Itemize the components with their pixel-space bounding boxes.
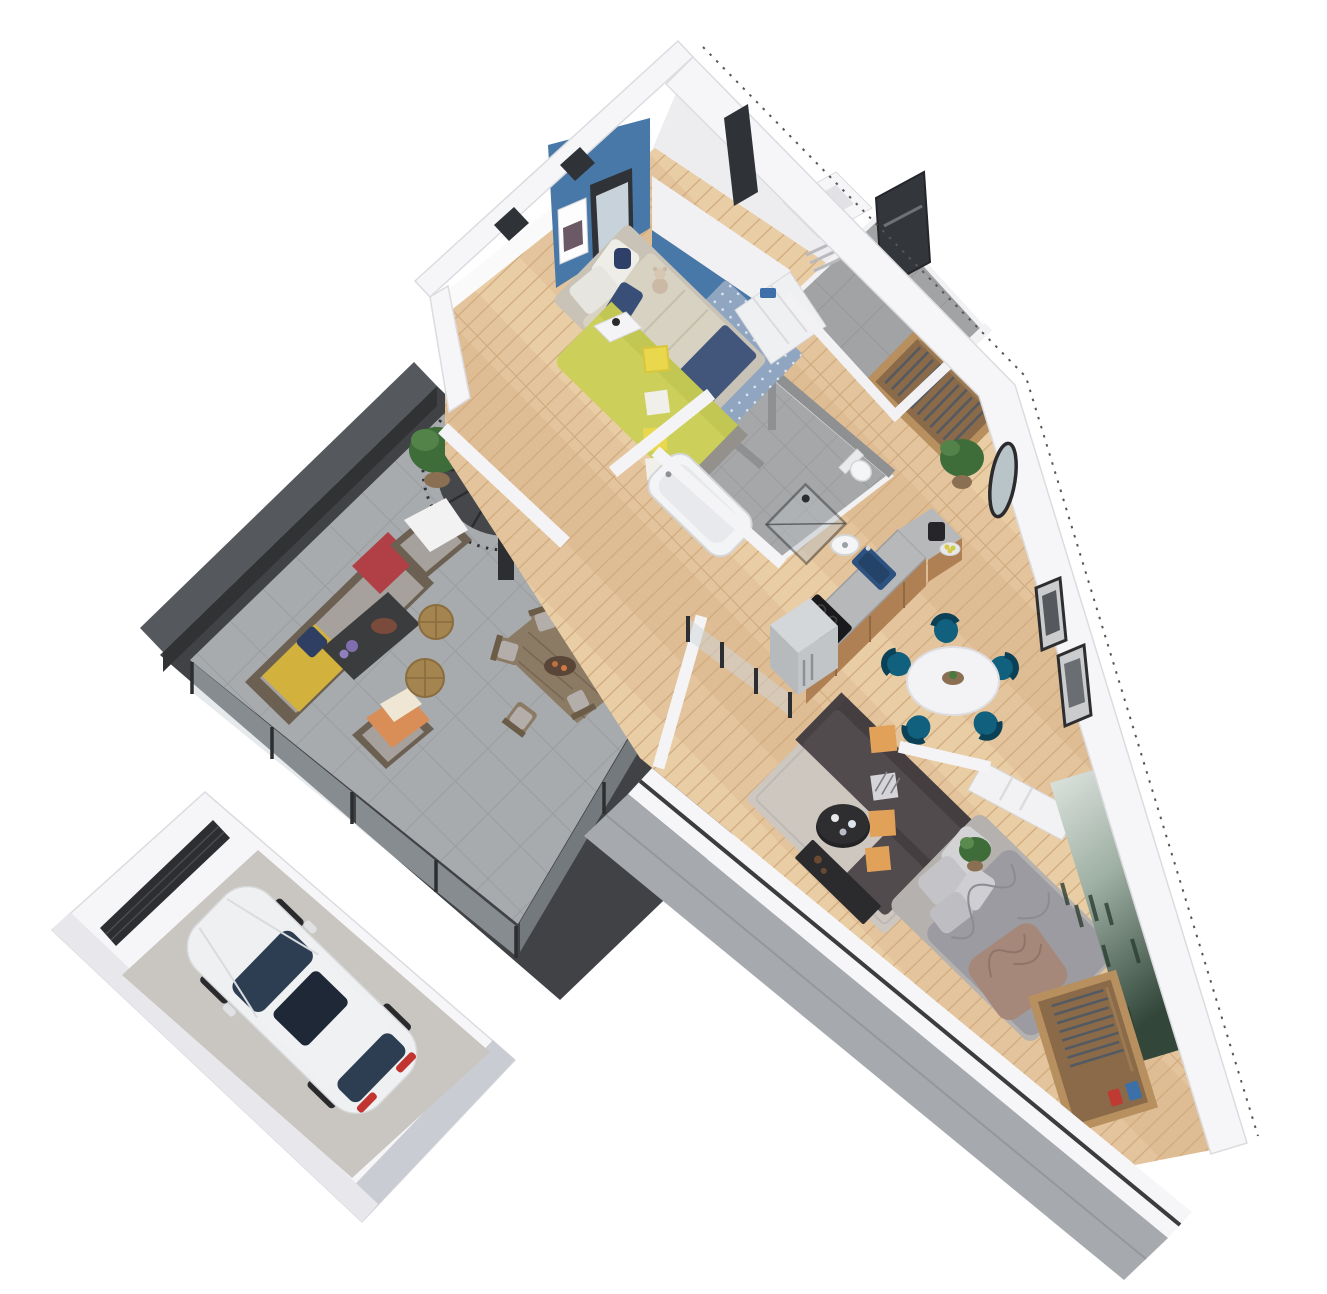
fruit-bowl bbox=[940, 543, 960, 556]
floor-plan-render bbox=[0, 0, 1327, 1294]
framed-picture-1 bbox=[1036, 578, 1066, 650]
coffee-machine bbox=[928, 522, 945, 541]
washbasin bbox=[831, 535, 859, 555]
teddy-bear bbox=[652, 267, 668, 294]
coffee-table bbox=[816, 804, 870, 848]
backpack bbox=[614, 248, 631, 269]
poster bbox=[558, 198, 588, 264]
dining-table bbox=[907, 647, 999, 715]
framed-picture-2 bbox=[1058, 645, 1091, 726]
floor-plan-svg bbox=[0, 0, 1327, 1294]
